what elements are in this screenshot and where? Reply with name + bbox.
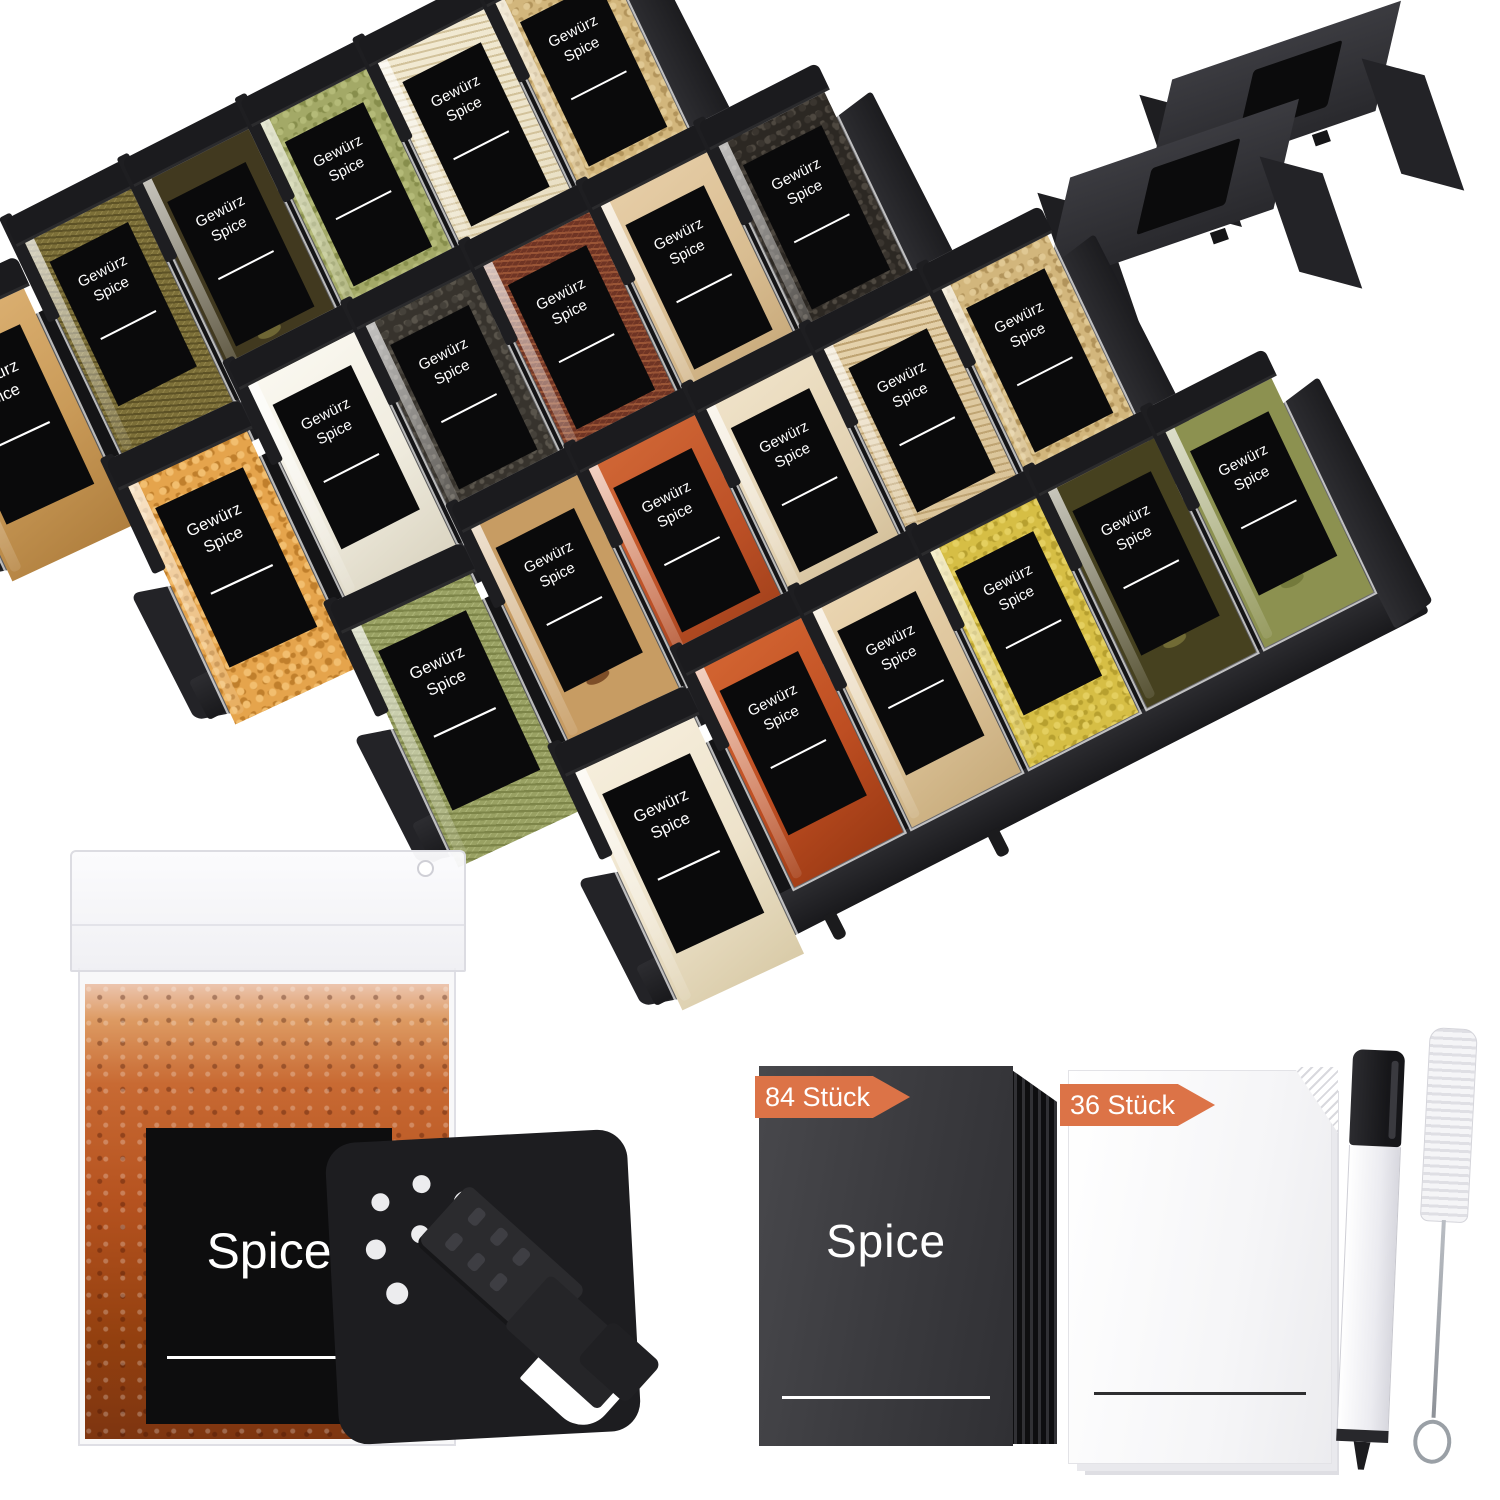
lid-seam xyxy=(72,924,464,926)
brush-handle-loop xyxy=(1412,1419,1452,1465)
slider-ridge xyxy=(443,1231,464,1252)
label-underline xyxy=(782,1396,990,1399)
jar-label-underline xyxy=(676,273,732,303)
slider-ridge xyxy=(466,1206,487,1227)
shaker-hole xyxy=(371,1193,390,1212)
jar-label-underline xyxy=(0,421,50,452)
product-photo: Gewürz Spice Gewürz Spice Gewürz Spice xyxy=(0,0,1500,1500)
jar-label-underline xyxy=(218,250,274,280)
jar-label-underline xyxy=(657,850,720,881)
jar-label-underline xyxy=(546,596,602,626)
jar-label-underline xyxy=(664,536,720,566)
slider-ridge xyxy=(488,1271,509,1292)
shaker-hole xyxy=(386,1282,409,1305)
jar-label-underline xyxy=(441,393,497,423)
label-front-card xyxy=(1068,1070,1332,1464)
jar-label-underline xyxy=(453,130,509,160)
lid-hole xyxy=(417,860,434,877)
jar-label-underline xyxy=(782,476,838,506)
pen-clip xyxy=(1388,1061,1398,1139)
jar-label-underline xyxy=(100,310,156,340)
jar-label-underline xyxy=(1017,356,1073,386)
bracket-side-wall xyxy=(1362,58,1465,190)
label-pack-black: Spice 84 Stück xyxy=(759,1066,1057,1446)
slider-ridge xyxy=(511,1246,532,1267)
jar-label-underline xyxy=(559,333,615,363)
pen-cap xyxy=(1349,1049,1405,1147)
pen-body xyxy=(1337,1145,1401,1431)
brush-wire xyxy=(1432,1220,1446,1418)
cleaning-brush xyxy=(1400,1027,1484,1486)
jar-label-underline xyxy=(210,564,273,595)
tray-foot xyxy=(986,828,1010,859)
shaker-lid xyxy=(324,1128,641,1445)
brush-bristles xyxy=(1420,1027,1478,1223)
bracket-clip xyxy=(1210,228,1229,245)
jar-label-underline xyxy=(1123,559,1179,589)
jar-label-underline xyxy=(1241,499,1297,529)
jar-label-underline xyxy=(770,739,826,769)
pen-tip xyxy=(1349,1441,1374,1470)
pen-ring xyxy=(1336,1429,1388,1443)
jar-label-underline xyxy=(323,453,379,483)
jar-label-underline xyxy=(433,707,496,738)
jar-lid xyxy=(70,850,466,972)
label-text: Spice xyxy=(759,1214,1013,1268)
slider-ridge xyxy=(488,1226,509,1247)
label-pack-white: 36 Stück xyxy=(1068,1070,1352,1470)
slider-ridge xyxy=(466,1251,487,1272)
label-sheet-stack xyxy=(1009,1068,1057,1444)
shaker-hole xyxy=(412,1175,431,1194)
jar-label-underline xyxy=(336,190,392,220)
jar-label-underline xyxy=(888,679,944,709)
jar-label-underline xyxy=(899,416,955,446)
shaker-hole xyxy=(365,1239,386,1260)
bracket-side-wall xyxy=(1260,156,1363,288)
label-underline xyxy=(1094,1392,1306,1395)
jar-label-underline xyxy=(794,213,850,243)
tray-foot xyxy=(823,910,847,941)
jar-label-underline xyxy=(1006,619,1062,649)
jar-label-underline xyxy=(571,70,627,100)
